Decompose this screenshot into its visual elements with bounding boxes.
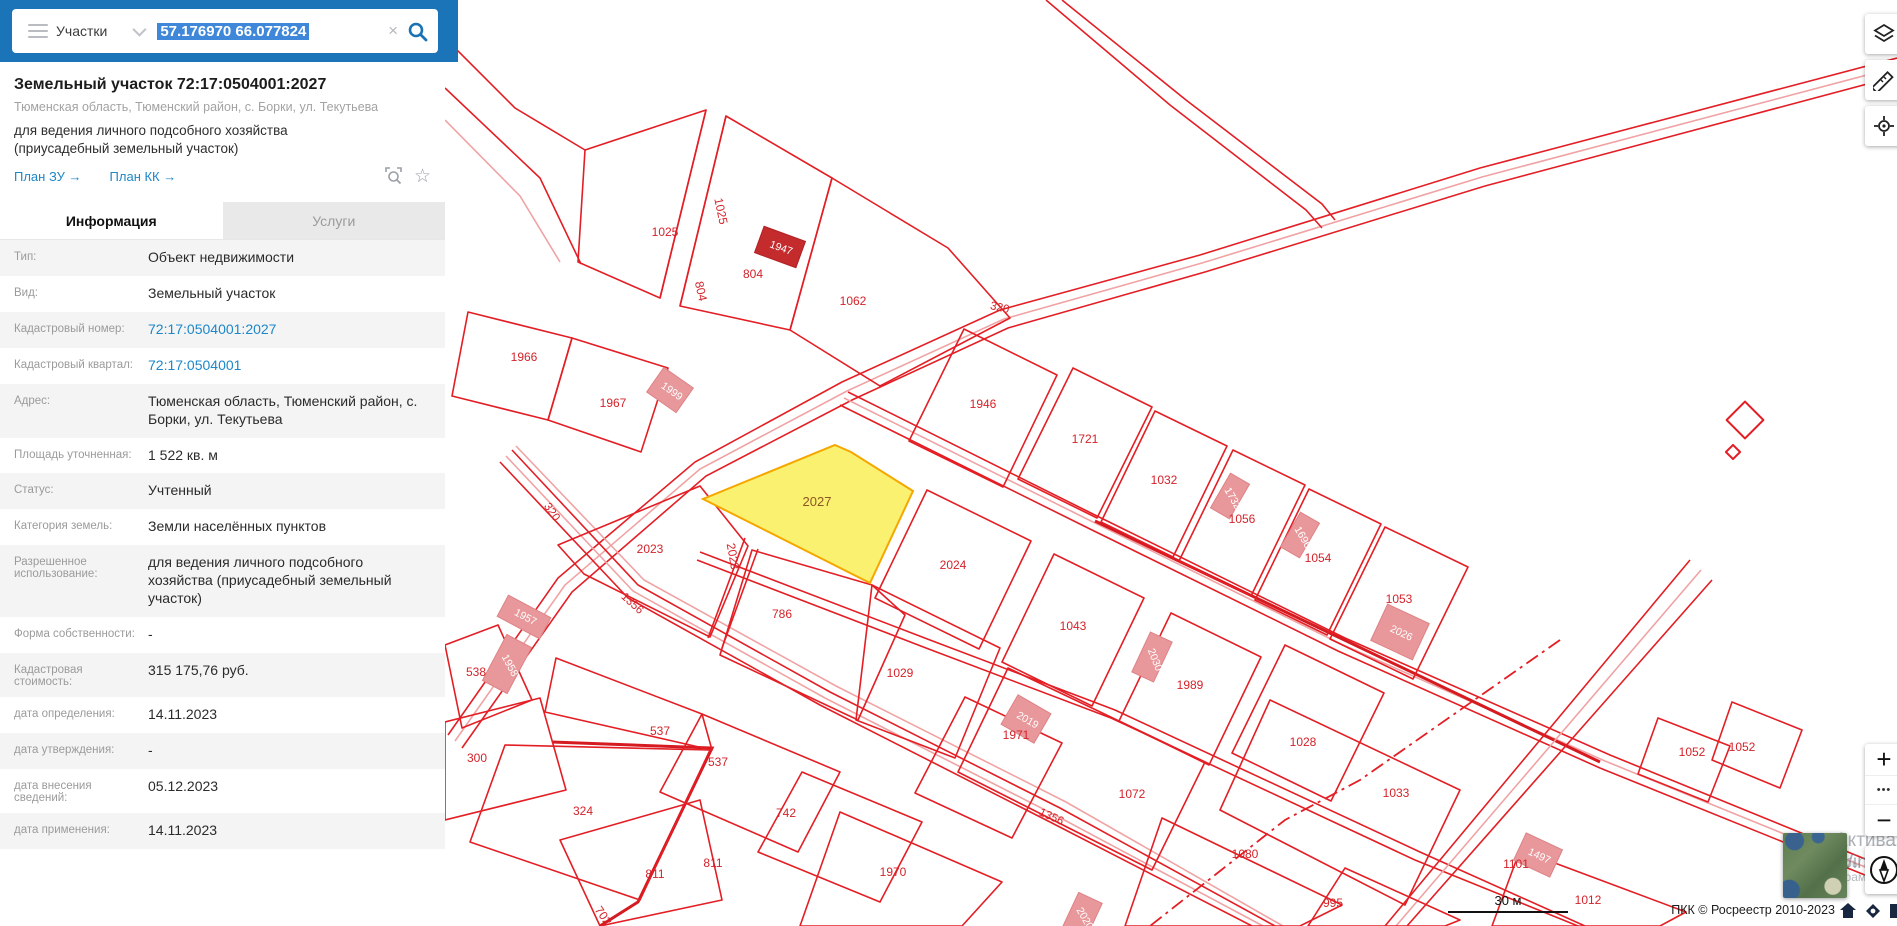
menu-icon[interactable] [28,20,48,42]
parcel-label-742: 742 [776,806,796,820]
attribution-icons [1840,903,1897,918]
parcel-300[interactable] [445,698,566,820]
info-row-value: - [136,742,431,760]
zoom-control: + ••• − [1865,744,1897,836]
info-row-label: дата применения: [14,822,136,840]
info-row: Форма собственности:- [0,617,445,653]
app-window: 1966196710251025804804106232032019461721… [0,0,1897,926]
info-row-value-link[interactable]: 72:17:0504001:2027 [136,321,431,339]
parcel-label-702: 702 [592,903,615,926]
parcel-label-1072: 1072 [1119,787,1146,801]
parcel-1025[interactable] [578,110,706,298]
object-usage: для ведения личного подсобного хозяйства… [14,122,334,157]
star-icon: ☆ [414,167,431,186]
parcel-label-995: 995 [1323,896,1343,910]
plan-links-row: План ЗУ →План КК → [14,167,431,196]
structure-diamond-small [1726,445,1740,459]
info-row: Вид:Земельный участок [0,276,445,312]
info-row: Категория земель:Земли населённых пункто… [0,509,445,545]
zoom-in-button[interactable]: + [1865,744,1897,775]
parcel-label-804: 804 [743,267,763,281]
info-row: Кадастровая стоимость:315 175,76 руб. [0,653,445,697]
parcel-layer [445,110,1802,926]
parcel-324[interactable] [470,745,710,900]
zoom-more-button[interactable]: ••• [1865,775,1897,805]
location-pin-icon[interactable] [1866,904,1880,918]
zoom-to-object-button[interactable] [385,167,404,186]
info-row: дата применения:14.11.2023 [0,813,445,849]
parcel-label-1080: 1080 [1232,847,1259,861]
parcel-label-1967: 1967 [600,396,627,410]
building-layer [482,226,1763,926]
info-row-value: 05.12.2023 [136,778,431,804]
parcel-label-1033: 1033 [1383,786,1410,800]
info-row-label: Площадь уточненная: [14,447,136,465]
partial-square-icon[interactable] [1890,904,1897,918]
info-row-value: 14.11.2023 [136,706,431,724]
selected-parcel-label-2027: 2027 [803,494,832,509]
road-label-1356: 1356 [618,591,645,617]
info-row-value: - [136,626,431,644]
search-button[interactable] [407,21,428,42]
parcel-label-1989: 1989 [1177,678,1204,692]
scale-line [1448,911,1568,913]
info-row-value: 1 522 кв. м [136,447,431,465]
favorite-button[interactable]: ☆ [414,167,431,186]
cadastral-map[interactable]: 1966196710251025804804106232032019461721… [445,0,1897,926]
chevron-down-icon [133,23,147,37]
parcel-label-786: 786 [772,607,792,621]
info-row-label: Форма собственности: [14,626,136,644]
parcel-label-811: 811 [703,856,722,870]
info-row-label: Вид: [14,285,136,303]
parcel-1033[interactable] [1220,700,1460,905]
structure-diamond [1727,402,1764,439]
parcel-label-1721: 1721 [1072,432,1099,446]
map-attribution: ПКК © Росреестр 2010-2023 [1671,903,1835,917]
road-right [1150,560,1712,926]
parcel-label-537: 537 [650,724,670,738]
parcel-label-2023: 2023 [637,542,664,556]
info-row: дата утверждения:- [0,733,445,769]
plan-zu-link[interactable]: План ЗУ → [14,169,82,184]
info-row-label: Кадастровый номер: [14,321,136,339]
road-label-1356: 1356 [1037,807,1065,828]
object-address: Тюменская область, Тюменский район, с. Б… [14,100,431,114]
info-row-label: Разрешенное использование: [14,554,136,608]
info-table: Тип:Объект недвижимостиВид:Земельный уча… [0,240,445,849]
parcel-label-537: 537 [708,755,728,769]
road-middle-2 [697,552,1585,926]
road-middle [840,392,1897,888]
info-row: Статус:Учтенный [0,473,445,509]
scale-label: 30 м [1494,893,1521,908]
info-row: Кадастровый номер:72:17:0504001:2027 [0,312,445,348]
info-row-value: для ведения личного подсобного хозяйства… [136,554,431,608]
info-row-label: дата внесения сведений: [14,778,136,804]
measure-button[interactable] [1865,60,1897,100]
info-row-label: Кадастровый квартал: [14,357,136,375]
parcel-label-1062: 1062 [840,294,867,308]
search-category-select[interactable]: Участки [56,23,143,39]
search-input[interactable]: 57.176970 66.077824 [157,23,379,40]
parcel-label-1946: 1946 [970,397,997,411]
parcel-label-324: 324 [573,804,593,818]
parcel-label-538: 538 [466,665,486,679]
parcel-label-1029: 1029 [887,666,914,680]
layers-button[interactable] [1865,14,1897,54]
compass-button[interactable] [1865,846,1897,894]
parcel-label-1032: 1032 [1151,473,1178,487]
info-row-value: Объект недвижимости [136,249,431,267]
info-row: Разрешенное использование:для ведения ли… [0,545,445,617]
parcel-label-1028: 1028 [1290,735,1317,749]
parcel-1966[interactable] [452,312,572,420]
parcel-537a[interactable] [545,658,712,750]
parcel-label-1966: 1966 [511,350,538,364]
parcel-label-1054: 1054 [1305,551,1332,565]
info-row-value-link[interactable]: 72:17:0504001 [136,357,431,375]
info-row-value: Земли населённых пунктов [136,518,431,536]
home-icon[interactable] [1840,903,1856,918]
crosshair-icon [1873,115,1895,137]
panel-tabs: ИнформацияУслуги [0,202,445,240]
parcel-1967[interactable] [548,338,668,452]
parcel-label-1025: 1025 [652,225,679,239]
locate-button[interactable] [1865,106,1897,146]
info-row: Кадастровый квартал:72:17:0504001 [0,348,445,384]
info-row-value: 14.11.2023 [136,822,431,840]
ruler-icon [1873,69,1895,91]
info-row-label: Статус: [14,482,136,500]
parcel-label-1056: 1056 [1229,512,1256,526]
parcel-label-1025: 1025 [711,197,730,226]
basemap-preview[interactable] [1783,833,1847,898]
zoom-out-button[interactable]: − [1865,805,1897,836]
info-row-label: Адрес: [14,393,136,429]
road-label-320: 320 [541,501,562,524]
parcel-label-1052: 1052 [1679,745,1706,759]
info-row-value: Тюменская область, Тюменский район, с. Б… [136,393,431,429]
compass-icon [1867,853,1897,887]
road-top [1046,0,1335,228]
info-row-label: дата утверждения: [14,742,136,760]
scale-bar: 30 м [1448,893,1568,913]
zoom-extent-icon [385,167,404,186]
search-icon [407,21,428,42]
plan-kk-link[interactable]: План КК → [110,169,177,184]
search-category-label: Участки [56,23,107,39]
parcel-label-811: 811 [645,867,664,881]
parcel-label-1970: 1970 [880,865,907,879]
info-row-value: 315 175,76 руб. [136,662,431,688]
info-row: Площадь уточненная:1 522 кв. м [0,438,445,474]
map-pane[interactable]: 1966196710251025804804106232032019461721… [445,0,1897,926]
info-row: дата внесения сведений:05.12.2023 [0,769,445,813]
parcel-811[interactable] [560,800,722,926]
info-row-value: Учтенный [136,482,431,500]
object-title: Земельный участок 72:17:0504001:2027 [14,76,431,94]
info-row: Тип:Объект недвижимости [0,240,445,276]
parcel-label-1052: 1052 [1729,740,1756,754]
parcel-label-2024: 2024 [940,558,967,572]
info-row-value: Земельный участок [136,285,431,303]
search-query-selected-text: 57.176970 66.077824 [157,23,309,40]
parcel-label-2023: 2023 [724,542,742,571]
corner-lines [445,38,758,926]
info-row-label: Тип: [14,249,136,267]
tab-information[interactable]: Информация [0,202,223,239]
parcel-label-804: 804 [692,280,710,303]
parcel-label-1053: 1053 [1386,592,1413,606]
info-row-label: Кадастровая стоимость: [14,662,136,688]
info-row: Адрес:Тюменская область, Тюменский район… [0,384,445,438]
search-bar: Участки 57.176970 66.077824 × [12,9,438,53]
parcel-label-1971: 1971 [1003,728,1030,742]
parcel-1072[interactable] [958,668,1205,870]
parcel-label-1101: 1101 [1503,857,1529,871]
layers-icon [1873,23,1895,45]
info-row-label: Категория земель: [14,518,136,536]
parcel-label-300: 300 [467,751,487,765]
clear-search-button[interactable]: × [379,21,407,41]
parcel-label-1012: 1012 [1575,893,1602,907]
parcel-537b[interactable] [660,714,840,852]
info-row-label: дата определения: [14,706,136,724]
tab-services[interactable]: Услуги [223,202,446,239]
map-labels: 1966196710251025804804106232032019461721… [466,197,1756,926]
info-row: дата определения:14.11.2023 [0,697,445,733]
object-info-panel: Земельный участок 72:17:0504001:2027 Тюм… [0,0,445,926]
parcel-label-1043: 1043 [1060,619,1087,633]
